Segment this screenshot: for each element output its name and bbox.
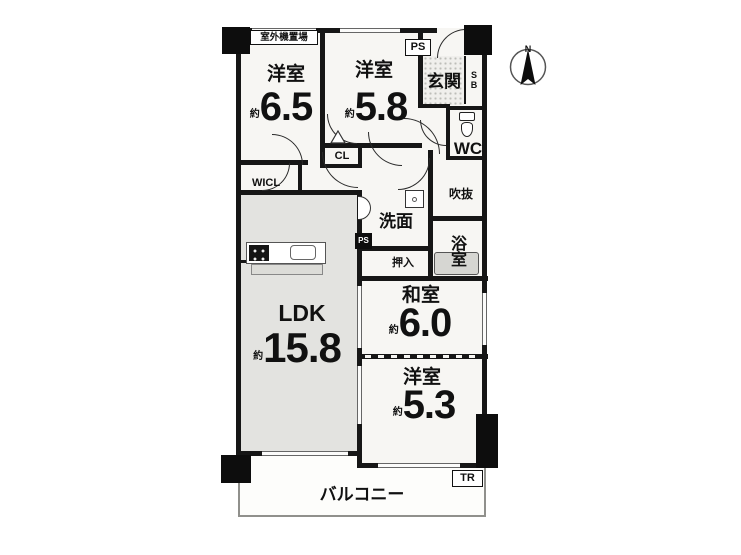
- room-western-65-area: 約 6.5: [238, 90, 324, 124]
- wall-wc-top: [446, 106, 484, 110]
- compass-needle-icon: [521, 49, 536, 85]
- area-value: 5.8: [355, 90, 408, 124]
- wall-oshiire-bottom: [357, 276, 488, 281]
- sliding-opening-53: [357, 366, 362, 424]
- area-value: 6.0: [399, 306, 452, 340]
- room-ldk-name: LDK: [276, 300, 328, 326]
- room-western-58-name: 洋室: [342, 58, 406, 82]
- compass: N: [505, 38, 551, 90]
- compass-north-label: N: [525, 44, 532, 54]
- wall-ldk-top: [236, 190, 362, 195]
- pipe-space-label: PS: [405, 39, 431, 56]
- cl-label: CL: [324, 148, 360, 164]
- fukinuke-label: 吹抜: [444, 186, 478, 201]
- pipe-space-small-label: PS: [355, 233, 372, 249]
- approx-mark: 約: [253, 347, 263, 366]
- balcony-label: バルコニー: [312, 484, 412, 504]
- wall-top-entrance: [423, 28, 437, 33]
- wall-right: [482, 54, 487, 468]
- toilet-tank-icon: [459, 112, 475, 121]
- kitchen-lower-cabinet: [251, 264, 323, 275]
- wicl-label: WICL: [240, 176, 292, 190]
- sliding-door-marks: [365, 355, 480, 358]
- trunk-room-label: TR: [452, 470, 483, 487]
- folding-door-mark: [330, 130, 346, 144]
- wall-wc-left: [446, 108, 450, 160]
- room-ldk-area: 約 15.8: [238, 330, 356, 366]
- approx-mark: 約: [250, 105, 260, 124]
- room-western-65-name: 洋室: [252, 62, 320, 86]
- room-western-58-area: 約 5.8: [330, 90, 422, 124]
- pillar-top-right: [464, 25, 492, 55]
- wall-bath-top: [428, 216, 487, 221]
- approx-mark: 約: [345, 105, 355, 124]
- area-value: 6.5: [260, 90, 313, 124]
- window-top-58: [340, 28, 400, 33]
- approx-mark: 約: [393, 403, 403, 422]
- window-washitsu-right: [482, 293, 487, 345]
- pillar-bottom-left: [221, 455, 251, 483]
- approx-mark: 約: [389, 321, 399, 340]
- pillar-top-left: [222, 27, 250, 54]
- window-ldk-bottom: [262, 451, 348, 456]
- window-53-bottom: [378, 463, 460, 468]
- area-value: 15.8: [263, 330, 341, 366]
- shoe-box-label: SB: [466, 58, 481, 102]
- sliding-opening-washitsu: [357, 286, 362, 348]
- genkan-label: 玄関: [423, 70, 465, 92]
- area-value: 5.3: [403, 388, 456, 422]
- room-japanese-60-area: 約 6.0: [376, 306, 464, 340]
- laundry-drain-icon: [412, 197, 417, 202]
- senmen-label: 洗面: [372, 210, 420, 232]
- pillar-bottom-right: [476, 414, 498, 468]
- bathroom-label: 浴室: [446, 226, 466, 276]
- stove-icon: [249, 245, 269, 261]
- floor-plan: 室外機置場 PS TR PS SB 洋室 約 6.5 洋室 約 5.8 LDK …: [0, 0, 741, 555]
- room-western-53-area: 約 5.3: [380, 388, 468, 422]
- wc-label: WC: [452, 138, 484, 158]
- outdoor-unit-label: 室外機置場: [250, 30, 318, 45]
- sink-icon: [290, 245, 316, 260]
- oshiire-label: 押入: [386, 256, 420, 271]
